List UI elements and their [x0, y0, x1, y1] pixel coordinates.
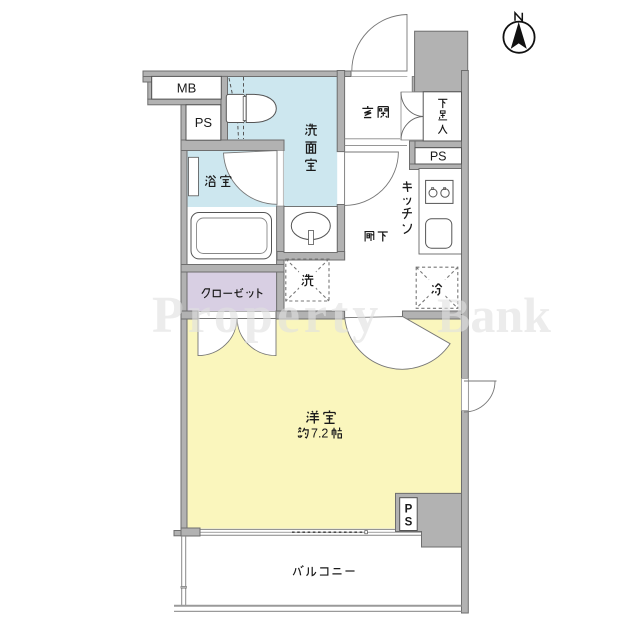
svg-text:7.2: 7.2: [311, 427, 328, 441]
svg-text:PS: PS: [430, 149, 447, 163]
svg-text:P: P: [405, 503, 413, 515]
svg-text:Property: Property: [152, 287, 382, 344]
svg-text:S: S: [405, 516, 413, 528]
svg-text:Bank: Bank: [437, 287, 551, 343]
svg-text:MB: MB: [177, 81, 197, 96]
svg-text:PS: PS: [195, 115, 213, 130]
